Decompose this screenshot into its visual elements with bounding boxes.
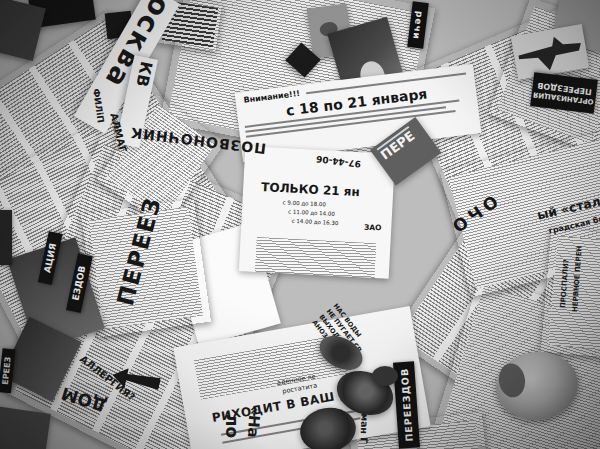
zao-label: ЗАО: [364, 224, 382, 232]
gun-silhouette: [515, 29, 584, 76]
tolko-headline: ТОЛЬКО 21 ян: [261, 181, 360, 198]
kv-headline: КВ: [133, 60, 154, 88]
lo-label: ло: [223, 414, 240, 438]
schedule-line: с 9.00 до 18.00: [282, 200, 326, 208]
schedule-line: с 11.00 до 14.00: [288, 209, 335, 217]
paper-scrap-tolko: 97-44-06 ТОЛЬКО 21 ян с 9.00 до 18.00 с …: [239, 146, 395, 279]
rechi-label: речи: [412, 10, 424, 40]
left-edge-banner-2: [0, 210, 12, 265]
photo-corner-top-left-2: [0, 0, 46, 61]
phone-upside-down: 97-44-06: [316, 154, 362, 168]
ereez-label: ЕРЕЕЗ: [1, 356, 12, 385]
photo-face-shadow: [497, 362, 527, 399]
newspaper-collage: Внимание!!! с 18 по 21 января 97-44-06 Т…: [0, 0, 600, 449]
na-quote-label: «На: [245, 405, 262, 438]
newsprint-texture: [246, 228, 385, 287]
schedule-line: с 14.00 до 16.30: [291, 219, 338, 227]
photo-dark-rings: [372, 366, 398, 386]
pereezdov-vertical-label: ПЕРЕЕЗДОВ: [399, 368, 414, 442]
photo-corner-bottom-left: [0, 406, 51, 449]
paper-scrap-right-edge-mid: [540, 227, 600, 359]
